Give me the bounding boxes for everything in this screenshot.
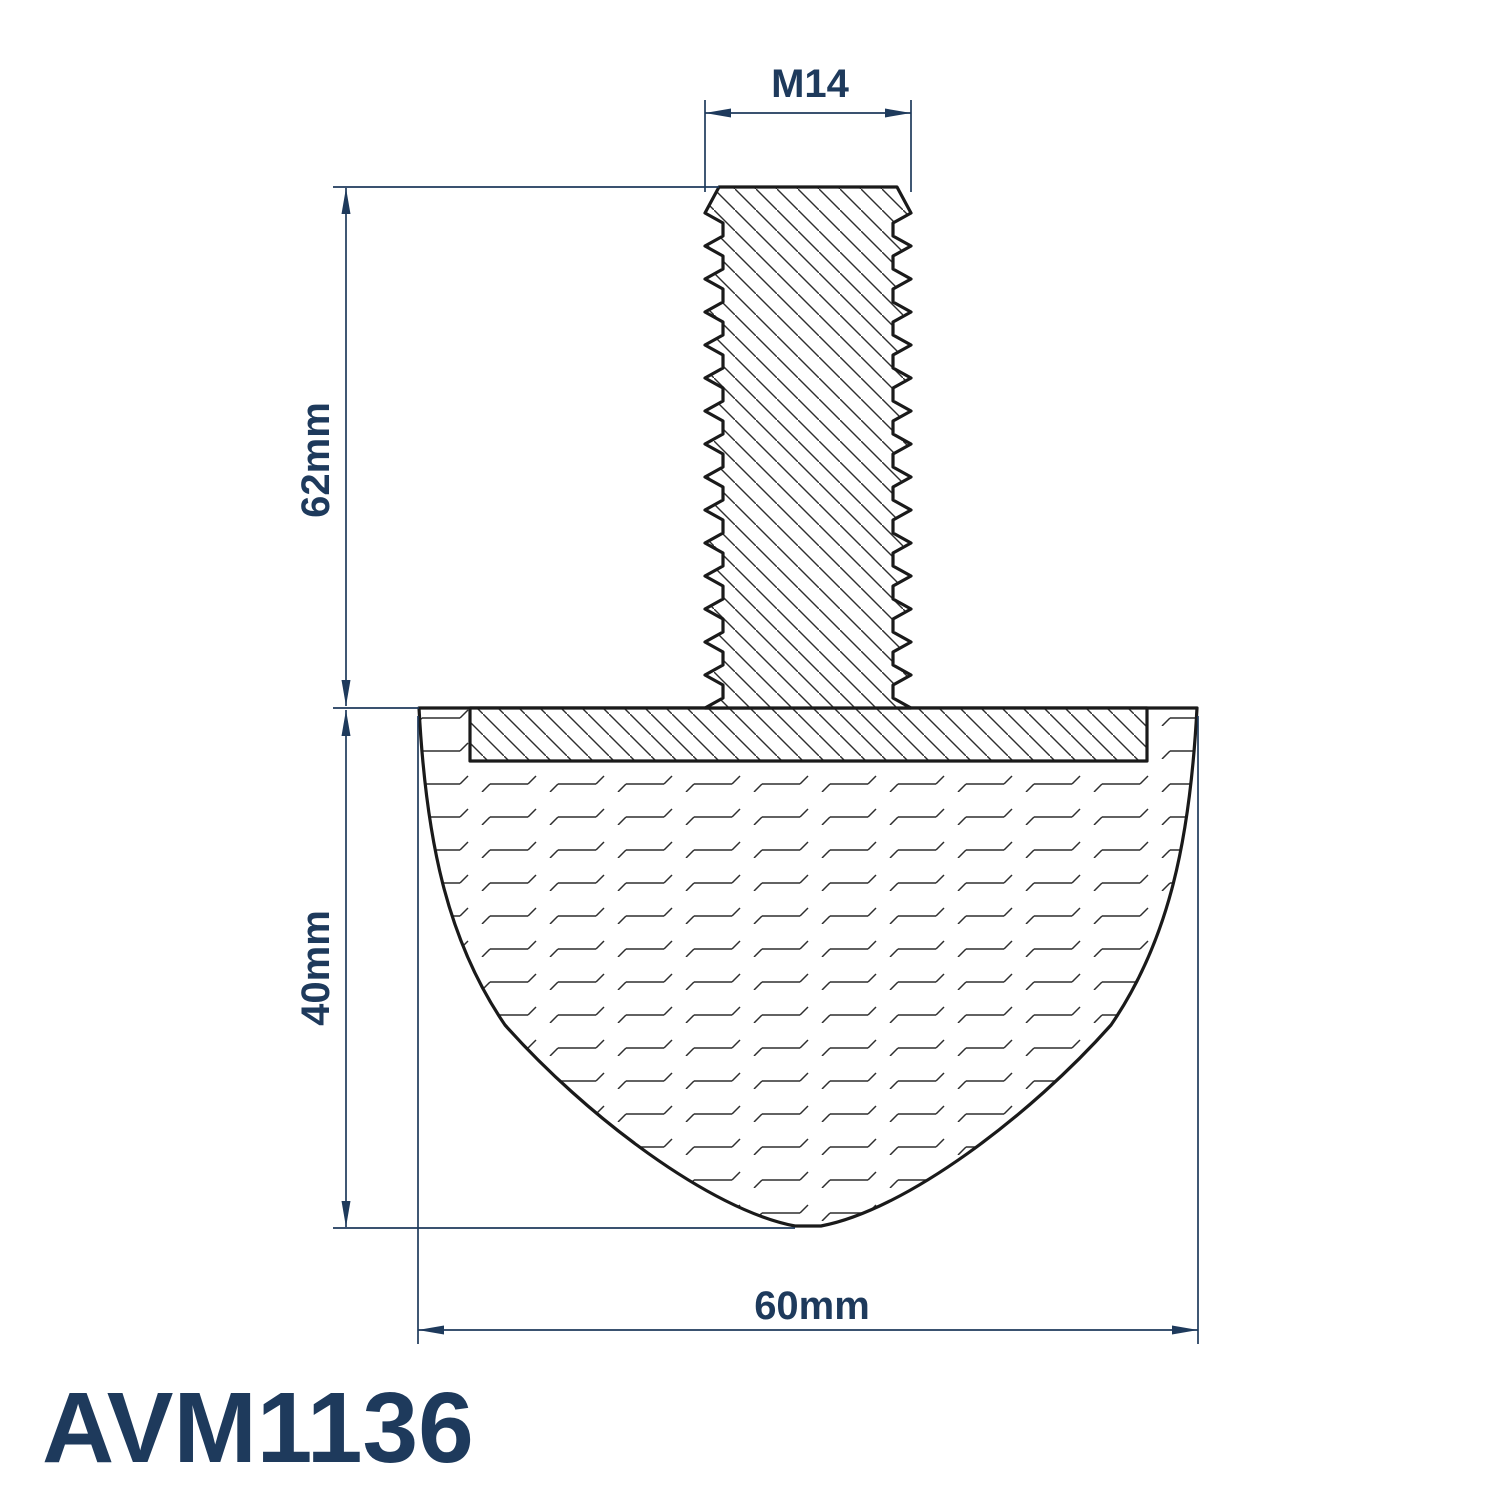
dim-label-thread-size: M14 [710,62,910,106]
arrowhead [885,109,911,118]
arrowhead [342,680,351,706]
washer-plate-shape [470,708,1147,761]
dim-label-body-height: 40mm [294,888,338,1048]
arrowhead [705,109,731,118]
dim-m14 [705,100,911,192]
technical-drawing [0,0,1500,1500]
dim-label-stud-length: 62mm [294,380,338,540]
arrowhead [342,1201,351,1227]
threaded-stud-shape [705,187,911,708]
part-geometry [419,187,1197,1226]
arrowhead [342,710,351,736]
dim-62mm [333,187,719,706]
rubber-dome-shape [419,708,1197,1226]
part-number-label: AVM1136 [42,1378,474,1478]
arrowhead [342,188,351,214]
technical-drawing-page: M14 62mm 40mm 60mm AVM1136 [0,0,1500,1500]
arrowhead [1172,1326,1198,1335]
arrowhead [418,1326,444,1335]
dim-label-body-width: 60mm [712,1284,912,1328]
